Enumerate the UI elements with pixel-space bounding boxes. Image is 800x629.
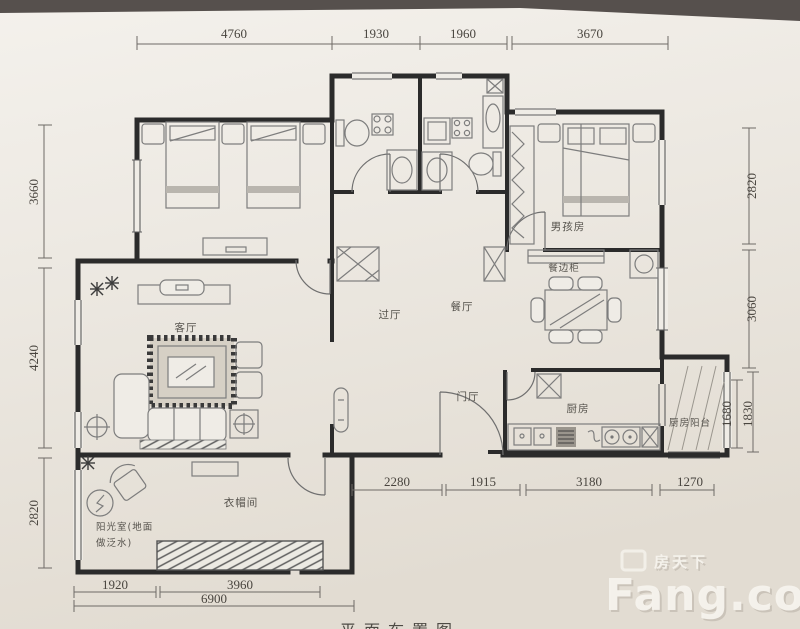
label-foyer: 门厅 [457, 390, 480, 403]
dim-bottom-0: 2280 [384, 474, 410, 489]
label-kitchen: 厨房 [567, 402, 590, 415]
window-boys-right [657, 140, 667, 205]
dim-right-2: 1680 [719, 401, 734, 427]
chair-icon [531, 298, 544, 322]
dim-bottom-1: 1915 [470, 474, 496, 489]
chair-icon [608, 298, 621, 322]
watermark-cn: 房天下 [654, 553, 708, 571]
label-kitchen-balcony: 厨房阳台 [669, 417, 711, 429]
dim-bl-0: 1920 [102, 577, 128, 592]
wardrobe-rail-icon [157, 541, 323, 570]
dim-left-2: 2820 [26, 500, 41, 526]
dim-top-1: 1930 [363, 26, 389, 41]
drawer-icon [556, 427, 576, 447]
label-cloakroom: 衣帽间 [224, 496, 259, 509]
window-bath2-top [436, 71, 462, 81]
label-sideboard: 餐边柜 [548, 262, 580, 274]
watermark-en: Fang.com [605, 570, 800, 621]
chair-icon [549, 330, 573, 343]
dim-bl-2: 6900 [201, 591, 227, 606]
window-living-left-2 [73, 412, 83, 448]
dim-bl-1: 3960 [227, 577, 253, 592]
dim-top-3: 3670 [577, 26, 603, 41]
floor-plan-photo: 4760 1930 1960 3670 3660 4240 2820 2820 … [0, 0, 800, 629]
window-living-left-1 [73, 300, 83, 345]
label-hall: 过厅 [379, 308, 402, 321]
dim-right-0: 2820 [744, 173, 759, 199]
label-living: 客厅 [175, 321, 198, 334]
dim-right-1: 3060 [744, 296, 759, 322]
floor-plan: 4760 1930 1960 3670 3660 4240 2820 2820 … [0, 0, 800, 629]
dim-left-0: 3660 [26, 179, 41, 205]
window-boys-top [515, 107, 556, 117]
dim-bottom-3: 1270 [677, 474, 703, 489]
dim-top-2: 1960 [450, 26, 476, 41]
plant-icon [105, 276, 119, 290]
chair-icon [578, 330, 602, 343]
label-sunroom-2: 做泛水) [96, 537, 132, 549]
chair-icon [578, 277, 602, 290]
label-dining: 餐厅 [451, 300, 474, 313]
plan-caption: 平面布置图 [340, 621, 460, 629]
coffee-table-icon [168, 357, 214, 387]
plant-icon [81, 456, 95, 470]
window-sunroom-left [73, 470, 83, 560]
plant-icon [90, 282, 104, 296]
dim-left-1: 4240 [26, 345, 41, 371]
chair-icon [549, 277, 573, 290]
label-boys-room: 男孩房 [551, 220, 586, 233]
window-bedroom-left [132, 160, 142, 232]
label-sunroom-1: 阳光室(地面 [96, 521, 153, 533]
dim-right-3: 1830 [740, 401, 755, 427]
window-bath1-top [352, 71, 392, 81]
dim-top-0: 4760 [221, 26, 247, 41]
dim-bottom-2: 3180 [576, 474, 602, 489]
